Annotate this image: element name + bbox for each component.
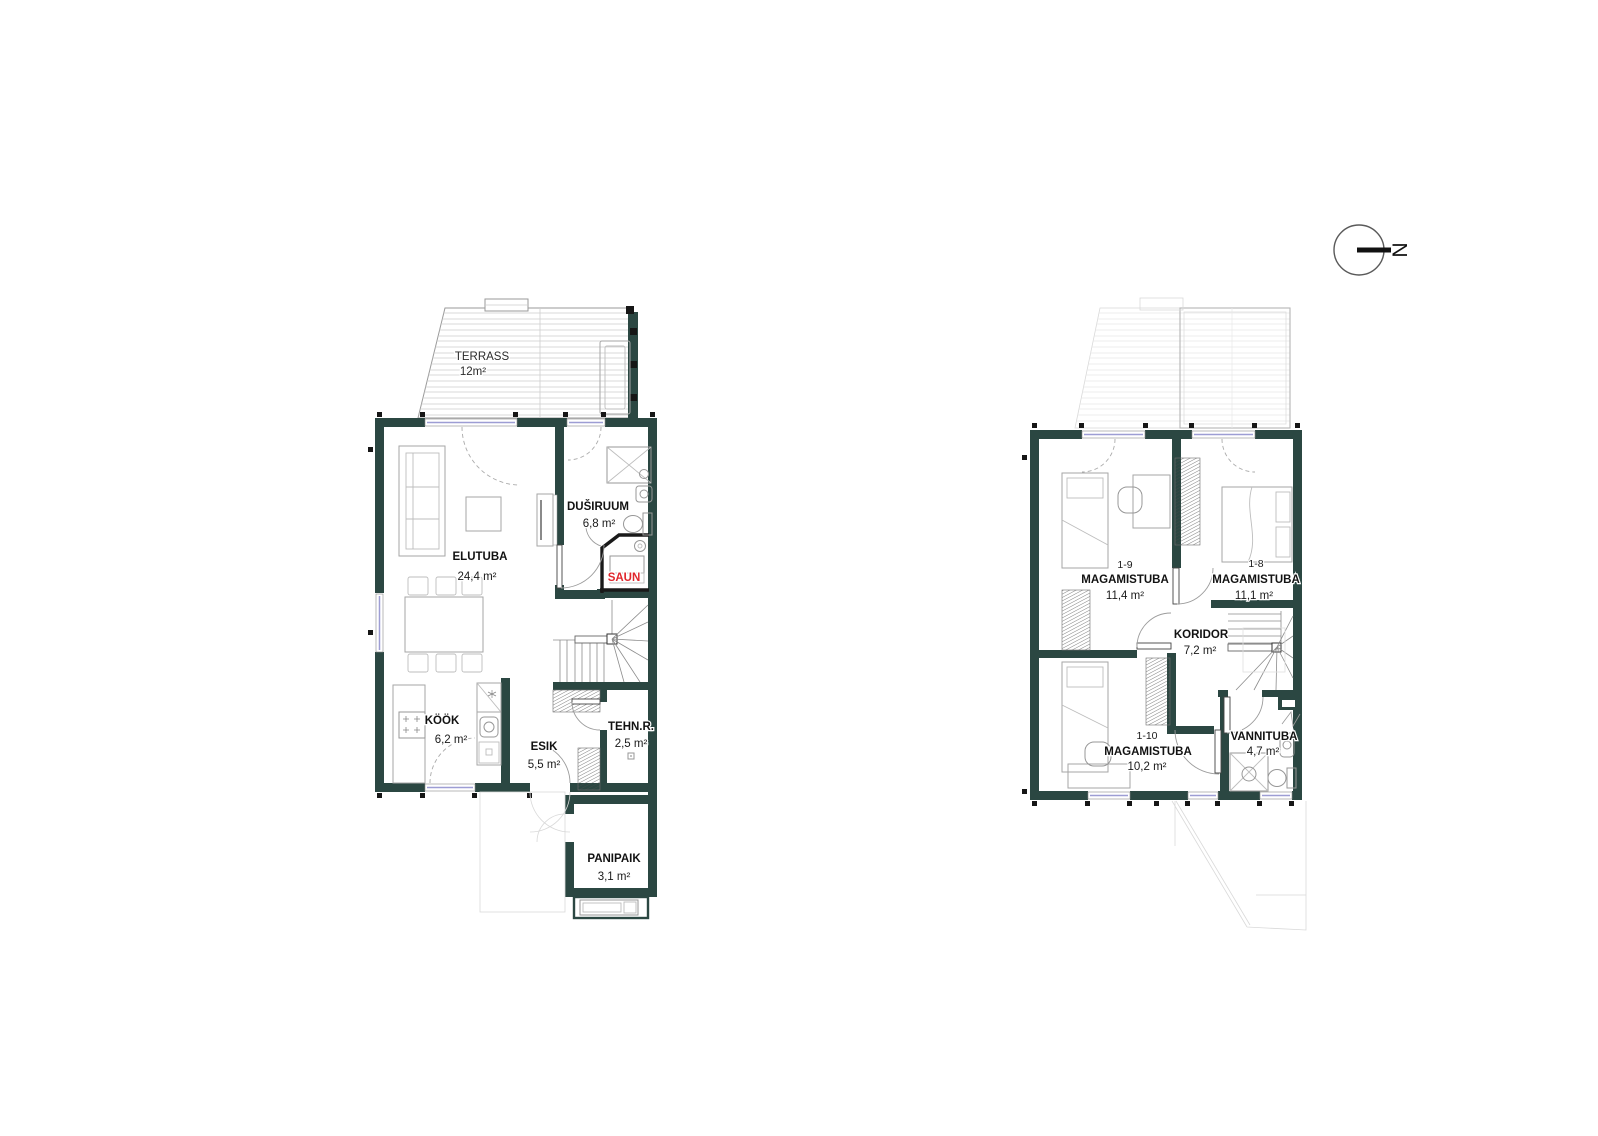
panipaik-label: PANIPAIK: [587, 853, 641, 865]
wardrobe-1-10: [1146, 658, 1170, 725]
shower-floor2: [1230, 753, 1268, 791]
floor1-doors: [430, 427, 604, 783]
esik-label: ESIK: [531, 741, 559, 753]
kitchen-counters: [393, 683, 501, 783]
koridor-area: 7,2 m²: [1184, 645, 1217, 657]
wardrobe-1-9: [1062, 590, 1090, 650]
tehnr-label: TEHN.R.: [608, 721, 654, 733]
kook-area: 6,2 m²: [435, 734, 468, 746]
ghost-roof-outline: [1172, 801, 1306, 930]
duct-shaft: [1282, 700, 1295, 707]
terrass-area: 12m²: [460, 366, 486, 378]
mag10-label: MAGAMISTUBA: [1104, 746, 1192, 758]
mag8-label: MAGAMISTUBA: [1212, 574, 1300, 586]
terrace: [410, 299, 640, 418]
floor-plan-drawing: N: [0, 0, 1598, 1136]
kook-label: KÖÖK: [425, 714, 460, 727]
entry-porch-outline: [480, 792, 570, 912]
hall-closet: [578, 748, 600, 790]
sauna-walls: [600, 535, 649, 593]
bed-1-8: [1222, 487, 1292, 562]
ghost-terrace: [1065, 298, 1295, 428]
wardrobe-1-8: [1175, 458, 1200, 545]
tv-bench: [537, 494, 553, 546]
elutuba-area: 24,4 m²: [458, 571, 497, 583]
coffee-table: [466, 497, 501, 531]
vannituba-label: VANNITUBA: [1231, 731, 1298, 743]
terrass-label: TERRASS: [455, 351, 510, 363]
floor-drain-symbol: [628, 753, 634, 759]
panipaik-area: 3,1 m²: [598, 871, 631, 883]
stairs-floor1: [553, 600, 648, 682]
floor1-windows: [376, 419, 605, 791]
esik-area: 5,5 m²: [528, 759, 561, 771]
saun-label: SAUN: [608, 572, 641, 584]
desk-1-9: [1118, 475, 1170, 528]
tv-niche: [553, 495, 557, 545]
vannituba-area: 4,7 m²: [1247, 746, 1280, 758]
floor2-plan: 1-9 MAGAMISTUBA 11,4 m² 1-8 MAGAMISTUBA …: [1022, 298, 1306, 930]
mag10-code: 1-10: [1136, 730, 1157, 742]
stairs-floor2: [1228, 611, 1293, 690]
floor1-walls: [375, 418, 657, 897]
mag9-area: 11,4 m²: [1106, 590, 1144, 602]
storage-niche: [574, 897, 648, 918]
toilet-floor2: [1268, 768, 1296, 788]
dusiruum-area: 6,8 m²: [583, 518, 616, 530]
toilet: [624, 513, 653, 535]
elutuba-label: ELUTUBA: [453, 551, 508, 563]
koridor-label: KORIDOR: [1174, 629, 1229, 641]
bed-1-9: [1062, 473, 1108, 568]
floor-plan-page: N: [0, 0, 1598, 1136]
sofa: [399, 446, 445, 556]
mag9-code: 1-9: [1117, 559, 1132, 571]
north-indicator-icon: N: [1334, 225, 1411, 275]
tehnr-area: 2,5 m²: [615, 738, 648, 750]
mag9-label: MAGAMISTUBA: [1081, 574, 1169, 586]
shower: [607, 447, 651, 483]
dusiruum-label: DUŠIRUUM: [567, 500, 629, 513]
north-letter: N: [1388, 242, 1411, 257]
mag10-area: 10,2 m²: [1128, 761, 1167, 773]
floor1-plan: TERRASS 12m² ELUTUBA 24,4 m² DUŠIRUUM 6,…: [368, 299, 657, 918]
dining-table: [405, 577, 483, 672]
mag8-code: 1-8: [1248, 558, 1263, 570]
mag8-area: 11,1 m²: [1235, 590, 1273, 602]
